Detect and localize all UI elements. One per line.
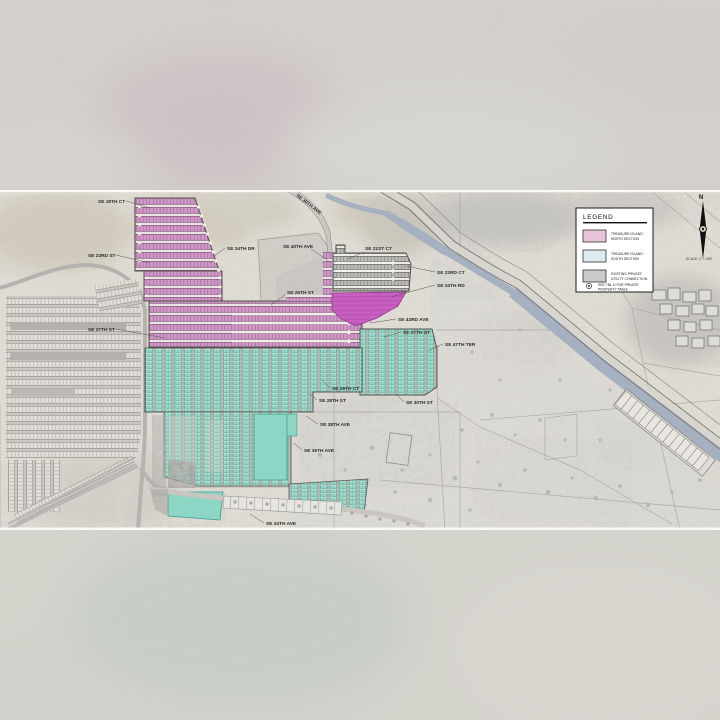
svg-text:SE 34TH AVE: SE 34TH AVE bbox=[266, 521, 297, 527]
svg-text:SE 24TH RD: SE 24TH RD bbox=[437, 283, 465, 289]
svg-text:SOUTH SECTION: SOUTH SECTION bbox=[611, 257, 639, 261]
svg-text:NORTH SECTION: NORTH SECTION bbox=[611, 237, 640, 241]
svg-text:SE 26TH ST: SE 26TH ST bbox=[287, 290, 314, 296]
svg-text:SE 27TH ST: SE 27TH ST bbox=[403, 330, 430, 336]
svg-text:SE 38TH AVE: SE 38TH AVE bbox=[320, 422, 351, 428]
svg-text:TREASURE ISLAND: TREASURE ISLAND bbox=[611, 252, 643, 256]
svg-text:SCALE: 1" = 300': SCALE: 1" = 300' bbox=[686, 257, 713, 261]
svg-text:SE 34TH DR: SE 34TH DR bbox=[227, 246, 255, 252]
svg-text:SE 21ST CT: SE 21ST CT bbox=[365, 246, 392, 252]
svg-text:TREASURE ISLAND: TREASURE ISLAND bbox=[611, 232, 643, 236]
svg-text:SEE TBL 1/ FOR PRIVATE: SEE TBL 1/ FOR PRIVATE bbox=[598, 283, 639, 287]
svg-text:SE 47TH TER: SE 47TH TER bbox=[445, 342, 476, 348]
svg-text:SE 36TH AVE: SE 36TH AVE bbox=[304, 448, 335, 454]
svg-text:EXISTING PRIVATE: EXISTING PRIVATE bbox=[611, 272, 643, 276]
svg-text:SE 40TH AVE: SE 40TH AVE bbox=[283, 244, 314, 250]
svg-text:SE 23RD ST: SE 23RD ST bbox=[88, 253, 116, 259]
svg-text:UTILITY CONNECTION: UTILITY CONNECTION bbox=[611, 277, 648, 281]
svg-text:SE 28TH ST: SE 28TH ST bbox=[319, 398, 346, 404]
svg-text:SE 30TH ST: SE 30TH ST bbox=[406, 400, 433, 406]
svg-text:SE 23RD CT: SE 23RD CT bbox=[437, 270, 465, 276]
svg-text:SE 29TH CT: SE 29TH CT bbox=[332, 386, 359, 392]
svg-text:PROPERTY TABLE: PROPERTY TABLE bbox=[598, 288, 629, 292]
svg-text:SE 27TH ST: SE 27TH ST bbox=[88, 327, 115, 333]
svg-text:SE 43RD AVE: SE 43RD AVE bbox=[398, 317, 429, 323]
svg-text:N: N bbox=[699, 195, 703, 201]
svg-text:LEGEND: LEGEND bbox=[583, 214, 613, 221]
svg-text:SE 18TH CT: SE 18TH CT bbox=[98, 199, 125, 205]
